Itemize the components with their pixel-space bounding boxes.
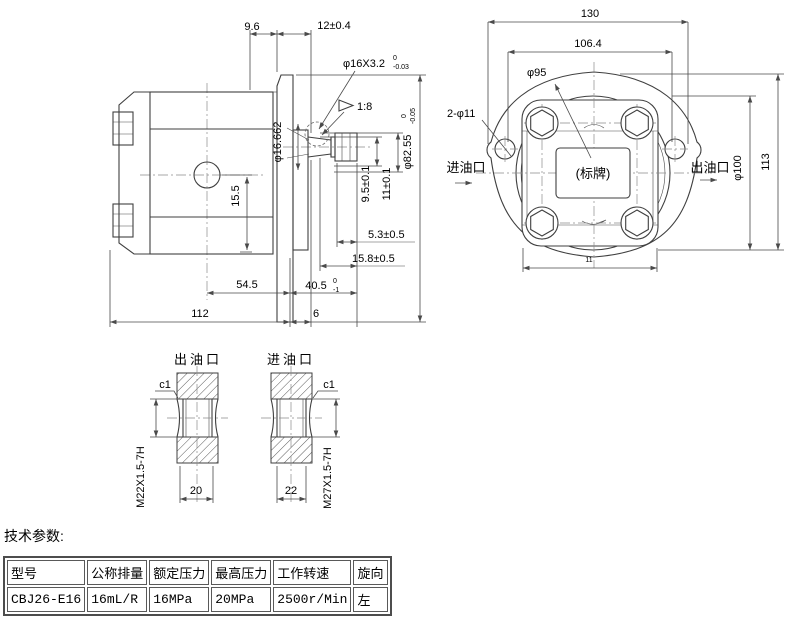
dim-9-6: 9.6	[244, 21, 311, 133]
dim-9-6-text: 9.6	[244, 21, 259, 33]
front-view: (标牌) 2-φ11 φ95 130 106.4 进油口 出油口	[446, 8, 784, 272]
inlet-text: 进油口	[446, 160, 485, 175]
dim-12-text: 12±0.4	[317, 20, 351, 32]
header-rated-pressure: 额定压力	[149, 560, 209, 585]
dim-key-a-text: 9.5±0.1	[360, 166, 372, 203]
inlet-port-section: 进油口 c1 M27X1.5-7H 22	[261, 352, 340, 509]
dim-100-text: φ100	[732, 155, 744, 181]
spline-tol-lower: -0.03	[393, 64, 409, 71]
dim-inlet-width: 22	[277, 466, 306, 503]
dim-body-width-text: 11	[585, 257, 592, 264]
outlet-port-label: 出油口	[174, 352, 222, 367]
port-sections: 出油口 c1 M22X1.5-7H 20 进油口	[135, 352, 340, 509]
params-table: 型号 公称排量 额定压力 最高压力 工作转速 旋向 CBJ26-E16 16mL…	[3, 556, 392, 616]
outlet-thread-text: M22X1.5-7H	[135, 446, 147, 508]
params-header-row: 型号 公称排量 额定压力 最高压力 工作转速 旋向	[7, 560, 388, 585]
dim-taper-dia: φ16.662	[272, 122, 309, 170]
spline-base-text: φ16X3.2	[343, 58, 385, 70]
dim-40-5-tol-upper: 0	[333, 278, 337, 285]
dim-113-text: 113	[760, 153, 772, 171]
side-view: 9.6 12±0.4 φ16X3.2 0 -0.03 1:8 φ16.662	[110, 20, 426, 327]
dim-112: 112	[110, 160, 311, 327]
dim-112-text: 112	[191, 308, 209, 320]
value-rotation: 左	[353, 587, 387, 612]
header-displacement: 公称排量	[87, 560, 147, 585]
header-rotation: 旋向	[353, 560, 387, 585]
dim-54-5-text: 54.5	[236, 279, 257, 291]
mount-holes-text: 2-φ11	[447, 108, 475, 120]
inlet-chamfer-text: c1	[323, 379, 335, 391]
hex-bolt	[526, 107, 558, 139]
inlet-callout: 进油口	[446, 160, 485, 183]
value-max-pressure: 20MPa	[211, 587, 271, 612]
nameplate-text: (标牌)	[576, 166, 611, 181]
taper-dia-text: φ16.662	[272, 122, 284, 163]
inlet-thread-text: M27X1.5-7H	[322, 447, 334, 509]
dim-6-text: 6	[313, 308, 319, 320]
pilot-dia-text: φ95	[527, 67, 546, 79]
dim-12: 12±0.4	[277, 20, 351, 34]
outlet-chamfer-callout: c1	[155, 379, 178, 398]
dim-40-5: 40.5 0 -1	[290, 278, 357, 294]
dim-15-5-text: 15.5	[230, 185, 242, 206]
hex-bolt	[621, 207, 653, 239]
value-rated-pressure: 16MPa	[149, 587, 209, 612]
dim-5-3-text: 5.3±0.5	[368, 229, 405, 241]
inlet-width-text: 22	[285, 485, 297, 497]
outlet-port-section: 出油口 c1 M22X1.5-7H 20	[135, 352, 228, 508]
taper-callout: 1:8	[322, 100, 372, 135]
params-value-row: CBJ26-E16 16mL/R 16MPa 20MPa 2500r/Min 左	[7, 587, 388, 612]
value-speed: 2500r/Min	[273, 587, 351, 612]
spline-callout: φ16X3.2 0 -0.03	[319, 55, 409, 129]
outlet-chamfer-text: c1	[159, 379, 171, 391]
value-displacement: 16mL/R	[87, 587, 147, 612]
dim-6: 6	[290, 308, 319, 322]
spline-tol-upper: 0	[393, 55, 397, 62]
dim-15-8-text: 15.8±0.5	[352, 253, 395, 265]
outlet-width-text: 20	[190, 485, 202, 497]
dim-106-4-text: 106.4	[574, 38, 602, 50]
dim-15-5: 15.5	[222, 175, 252, 252]
header-model: 型号	[7, 560, 85, 585]
dim-40-5-tol-lower: -1	[333, 287, 339, 294]
hex-bolt	[621, 107, 653, 139]
dim-key-b-text: 11±0.1	[381, 168, 393, 201]
inlet-chamfer-callout: c1	[313, 379, 338, 398]
flange-dia-tol-upper: 0	[401, 114, 408, 118]
technical-drawing: 9.6 12±0.4 φ16X3.2 0 -0.03 1:8 φ16.662	[0, 0, 800, 524]
taper-text: 1:8	[357, 101, 372, 113]
value-model: CBJ26-E16	[7, 587, 85, 612]
dim-outlet-width: 20	[180, 466, 213, 503]
params-title: 技术参数:	[4, 526, 64, 546]
header-speed: 工作转速	[273, 560, 351, 585]
inlet-port-label: 进油口	[267, 352, 315, 367]
dim-5-3: 5.3±0.5	[337, 163, 415, 327]
flange-dia-text: φ82.55	[402, 135, 414, 170]
header-max-pressure: 最高压力	[211, 560, 271, 585]
outlet-text: 出油口	[690, 160, 729, 175]
dim-40-5-text: 40.5	[305, 280, 326, 292]
hex-bolt	[526, 207, 558, 239]
dim-130-text: 130	[581, 8, 599, 20]
outlet-callout: 出油口	[690, 160, 729, 180]
pump-drawing-page: 9.6 12±0.4 φ16X3.2 0 -0.03 1:8 φ16.662	[0, 0, 800, 624]
flange-dia-tol-lower: -0.05	[410, 108, 417, 124]
